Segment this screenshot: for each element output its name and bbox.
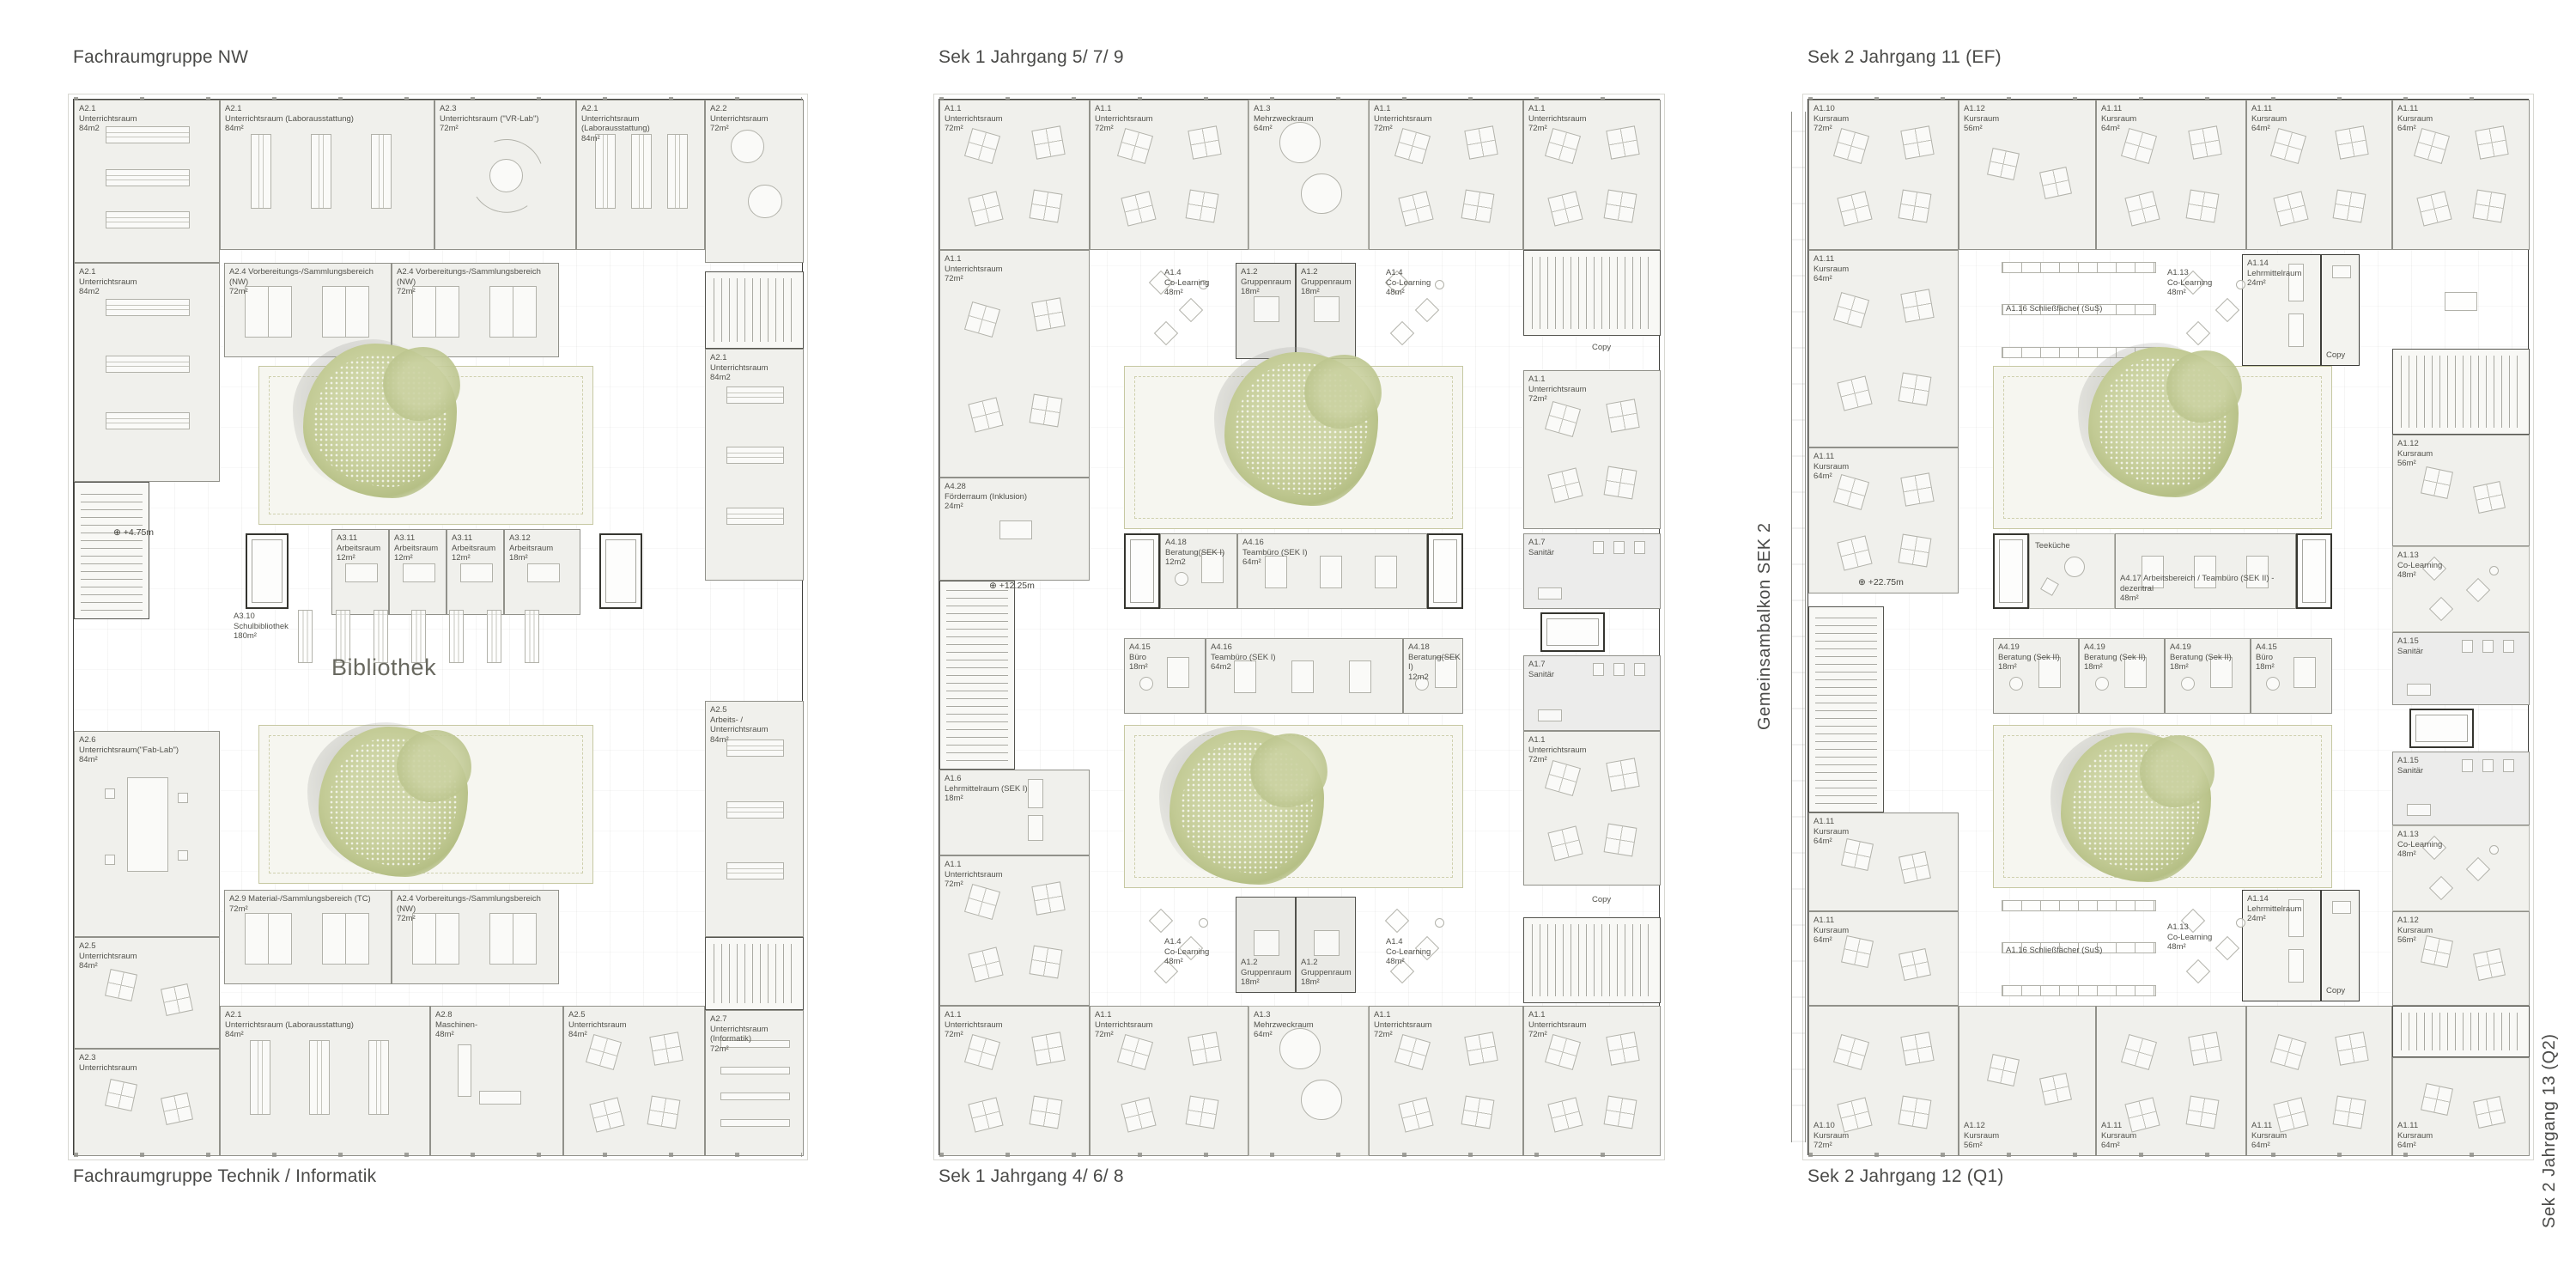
room-a1.7: A1.7 Sanitär [1523, 533, 1661, 609]
furniture [649, 1032, 683, 1065]
tree-foliage [383, 347, 460, 421]
furniture [2407, 684, 2431, 696]
furniture [1121, 1097, 1156, 1132]
room-label: A1.11 Kursraum 64m² [2101, 104, 2136, 134]
elevation-marker: ⊕ +12.25m [989, 581, 1035, 592]
room-a1.7: A1.7 Sanitär [1523, 655, 1661, 731]
furniture [2429, 597, 2453, 621]
furniture [161, 1093, 193, 1125]
furniture [105, 1079, 137, 1111]
furniture [2185, 189, 2219, 222]
furniture [1314, 296, 1340, 322]
furniture [1547, 1097, 1583, 1132]
furniture [1900, 472, 1934, 506]
annotation: Teeküche [2035, 541, 2070, 551]
room-label: A4.19 Beratung (Sek II) 18m² [2170, 642, 2232, 673]
room-a2.4: A2.4 Vorbereitungs-/Sammlungsbereich (NW… [392, 890, 559, 984]
furniture [2416, 191, 2451, 226]
furniture [2039, 167, 2072, 199]
room-a2.1: A2.1 Unterrichtsraum 84m2 [74, 100, 220, 263]
furniture [2473, 481, 2506, 514]
furniture [1320, 556, 1342, 588]
room-a2.9: A2.9 Material-/Sammlungsbereich (TC) 72m… [224, 890, 392, 984]
furniture [1435, 918, 1444, 928]
furniture [1254, 930, 1279, 956]
furniture [525, 610, 539, 663]
room-a1.12: A1.12 Kursraum 56m² [1959, 1006, 2096, 1156]
tree [1218, 345, 1385, 513]
furniture [1461, 1095, 1495, 1129]
furniture [1900, 1032, 1934, 1065]
furniture [250, 1040, 270, 1116]
furniture [1833, 292, 1869, 328]
courtyard [258, 366, 593, 525]
furniture [968, 1097, 1003, 1132]
furniture [2489, 845, 2499, 855]
room-label: A4.16 Teambüro (SEK I) 64m² [1242, 538, 1308, 568]
staircase [1523, 917, 1661, 1003]
room-label: A2.1 Unterrichtsraum 84m2 [710, 353, 769, 383]
furniture [1900, 289, 1934, 323]
room-label: A1.7 Sanitär [1528, 660, 1554, 679]
room-label: Copy [2326, 986, 2345, 996]
furniture [2121, 1033, 2157, 1069]
furniture [2040, 577, 2059, 596]
furniture [178, 793, 188, 803]
tree [312, 721, 475, 884]
tree [296, 337, 464, 504]
room-label: A1.1 Unterrichtsraum 72m² [1095, 1010, 1153, 1040]
room-a1.11: A1.11 Kursraum 64m² [2096, 1006, 2246, 1156]
room-a1.1: A1.1 Unterrichtsraum 72m² [1369, 1006, 1523, 1156]
room-label: A1.1 Unterrichtsraum 72m² [945, 860, 1003, 890]
room-a2.7: A2.7 Unterrichtsraum (Informatik) 72m² [705, 1010, 804, 1156]
furniture [1634, 663, 1645, 676]
plan3-title-top: Sek 2 Jahrgang 11 (EF) [1807, 47, 2002, 68]
room-label: A2.3 Unterrichtsraum ("VR-Lab") 72m² [440, 104, 539, 134]
furniture [1604, 466, 1637, 499]
furniture [1606, 125, 1639, 159]
furniture [1029, 1095, 1062, 1129]
tree-foliage [2166, 350, 2241, 423]
room-a4.16: A4.16 Teambüro (SEK I) 64m² [1237, 533, 1427, 609]
room-a1.1: A1.1 Unterrichtsraum 72m² [939, 100, 1090, 250]
furniture [2407, 804, 2431, 816]
furniture [1185, 1095, 1218, 1129]
room-copy: Copy [2321, 890, 2360, 1001]
room-label: A1.2 Gruppenraum 18m² [1241, 267, 1291, 297]
furniture [1314, 930, 1340, 956]
furniture [2185, 1095, 2219, 1129]
floor-plan-fachraumgruppe: A2.1 Unterrichtsraum 84m2A2.1 Unterricht… [73, 99, 803, 1155]
furniture [403, 563, 435, 582]
room-a2.5: A2.5 Arbeits- / Unterrichtsraum 84m² [705, 701, 804, 937]
furniture [2429, 876, 2453, 900]
room-label: A2.9 Material-/Sammlungsbereich (TC) 72m… [229, 894, 371, 914]
furniture [298, 610, 313, 663]
furniture [106, 169, 191, 186]
furniture [968, 397, 1003, 432]
room-a4.19: A4.19 Beratung (Sek II) 18m² [2165, 638, 2251, 714]
furniture [1545, 400, 1581, 436]
furniture [647, 1095, 680, 1129]
room-label: A1.12 Kursraum 56m² [1964, 1121, 1999, 1151]
furniture [1153, 321, 1177, 345]
staircase [2392, 349, 2530, 435]
furniture [1029, 393, 1062, 427]
room-a1.1: A1.1 Unterrichtsraum 72m² [939, 250, 1090, 478]
furniture [1188, 1032, 1221, 1065]
room-label: A1.1 Unterrichtsraum 72m² [945, 1010, 1003, 1040]
room-a1.14: A1.14 Lehrmittelraum 24m² [2242, 254, 2321, 366]
room-label: A1.11 Kursraum 64m² [1814, 916, 1849, 946]
room-a4.15: A4.15 Büro 18m² [1124, 638, 1206, 714]
annotation: A1.13 Co-Learning 48m² [2167, 268, 2212, 298]
room-label: A2.1 Unterrichtsraum (Laborausstattung) … [225, 104, 354, 134]
room-label: A2.1 Unterrichtsraum 84m2 [79, 104, 137, 134]
annotation: A1.4 Co-Learning 48m² [1386, 937, 1431, 967]
furniture [2475, 125, 2508, 159]
room-label: A1.1 Unterrichtsraum 72m² [1528, 374, 1587, 405]
room-a1.1: A1.1 Unterrichtsraum 72m² [1523, 1006, 1661, 1156]
room-a2.5: A2.5 Unterrichtsraum 84m² [74, 937, 220, 1049]
furniture [1188, 125, 1221, 159]
elevator [1124, 533, 1160, 609]
room-a4.17: A4.17 Arbeitsbereich / Teambüro (SEK II)… [2115, 533, 2296, 609]
furniture [2482, 759, 2494, 772]
room-label: A1.11 Kursraum 64m² [1814, 254, 1849, 284]
furniture [1898, 189, 1931, 222]
furniture [1389, 321, 1413, 345]
furniture [1175, 572, 1188, 586]
room-a1.1: A1.1 Unterrichtsraum 72m² [939, 1006, 1090, 1156]
furniture [2503, 640, 2514, 653]
room-label: A2.1 Unterrichtsraum (Laborausstattung) … [581, 104, 704, 143]
furniture [1833, 1033, 1869, 1069]
room-copy: Copy [2321, 254, 2360, 366]
furniture [1029, 945, 1062, 978]
room-label: A2.4 Vorbereitungs-/Sammlungsbereich (NW… [229, 267, 391, 297]
room-a1.15: A1.15 Sanitär [2392, 752, 2530, 825]
room-label: A1.13 Co-Learning 48m² [2397, 830, 2442, 860]
room-a4.18: A4.18 Beratung(SEK I) 12m2 [1160, 533, 1237, 609]
furniture [1987, 1054, 2020, 1086]
furniture [527, 563, 560, 582]
room-a1.1: A1.1 Unterrichtsraum 72m² [1523, 100, 1661, 250]
furniture [2445, 292, 2477, 311]
elevator [1540, 612, 1605, 652]
room-label: A4.19 Beratung (Sek II) 18m² [1998, 642, 2060, 673]
furniture [2215, 935, 2239, 959]
room-label: A1.1 Unterrichtsraum 72m² [1528, 104, 1587, 134]
room-a4.19: A4.19 Beratung (Sek II) 18m² [2079, 638, 2165, 714]
room-a1.1: A1.1 Unterrichtsraum 72m² [1523, 370, 1661, 529]
furniture [1538, 587, 1562, 600]
room-a2.1: A2.1 Unterrichtsraum 84m2 [74, 263, 220, 482]
furniture [2188, 1032, 2221, 1065]
annotation: A1.16 Schließfächer (SuS) [2006, 304, 2102, 314]
furniture [2181, 677, 2195, 691]
room-a4.16: A4.16 Teambüro (SEK I) 64m2 [1206, 638, 1403, 714]
furniture [2333, 1095, 2366, 1129]
furniture [2473, 1096, 2506, 1129]
furniture [2009, 677, 2023, 691]
furniture [2332, 265, 2351, 278]
furniture [322, 913, 369, 964]
furniture [1031, 125, 1065, 159]
room-label: A4.15 Büro 18m² [2256, 642, 2277, 673]
room-label: A3.11 Arbeitsraum 12m² [394, 533, 438, 563]
room-label: A1.13 Co-Learning 48m² [2397, 551, 2442, 581]
room-a1.1: A1.1 Unterrichtsraum 72m² [1523, 731, 1661, 886]
room-label: A1.11 Kursraum 64m² [1814, 452, 1849, 482]
room-label: A1.1 Unterrichtsraum 72m² [945, 104, 1003, 134]
furniture [1900, 125, 1934, 159]
room-label: A2.8 Maschinen- 48m² [435, 1010, 477, 1040]
room-label: A1.12 Kursraum 56m² [1964, 104, 1999, 134]
room-a1.3: A1.3 Mehrzweckraum 64m² [1249, 1006, 1369, 1156]
room-a2.6: A2.6 Unterrichtsraum("Fab-Lab") 84m² [74, 731, 220, 937]
furniture [2273, 191, 2308, 226]
furniture [2095, 677, 2109, 691]
furniture [2336, 1032, 2369, 1065]
room-label: A1.3 Mehrzweckraum 64m² [1254, 1010, 1314, 1040]
room-label: A1.14 Lehrmittelraum 24m² [2247, 894, 2301, 924]
furniture [748, 185, 781, 218]
furniture [2039, 1073, 2072, 1105]
furniture [2002, 985, 2156, 996]
room-label: A4.28 Förderraum (Inklusion) 24m² [945, 482, 1027, 512]
elevator [246, 533, 289, 609]
furniture [2236, 280, 2245, 289]
room-label: A1.2 Gruppenraum 18m² [1301, 958, 1352, 988]
furniture [2288, 313, 2304, 347]
zone [2401, 259, 2521, 344]
room-a1.11: A1.11 Kursraum 64m² [2096, 100, 2246, 250]
furniture [105, 969, 137, 1001]
room-a1.12: A1.12 Kursraum 56m² [1959, 100, 2096, 250]
furniture [1031, 297, 1065, 331]
room-label: A2.1 Unterrichtsraum 84m2 [79, 267, 137, 297]
elevator [1427, 533, 1463, 609]
room-a1.10: A1.10 Kursraum 72m² [1808, 1006, 1959, 1156]
furniture [2124, 191, 2160, 226]
room-label: A1.1 Unterrichtsraum 72m² [1528, 735, 1587, 765]
room-label: A4.15 Büro 18m² [1129, 642, 1151, 673]
furniture [1634, 541, 1645, 554]
elevation-marker: ⊕ +22.75m [1858, 577, 1904, 588]
furniture [1121, 191, 1156, 226]
room-a1.13: A1.13 Co-Learning 48m² [2392, 825, 2530, 911]
room-a1.11: A1.11 Kursraum 64m² [1808, 250, 1959, 447]
courtyard [258, 725, 593, 884]
furniture [1029, 189, 1062, 222]
furniture [1185, 189, 1218, 222]
room-a1.11: A1.11 Kursraum 64m² [2246, 1006, 2392, 1156]
furniture [1547, 825, 1583, 861]
room-label: A1.1 Unterrichtsraum 72m² [1374, 104, 1432, 134]
furniture [1398, 1097, 1433, 1132]
tree [1163, 724, 1331, 892]
furniture [726, 508, 784, 525]
furniture [1435, 280, 1444, 289]
room-a4.19: A4.19 Beratung (Sek II) 18m² [1993, 638, 2079, 714]
furniture [161, 983, 193, 1016]
furniture [2482, 640, 2494, 653]
furniture [1604, 1095, 1637, 1129]
room-label: A1.2 Gruppenraum 18m² [1241, 958, 1291, 988]
staircase [705, 271, 804, 349]
furniture [1415, 297, 1439, 321]
furniture [449, 610, 464, 663]
room-label: A4.17 Arbeitsbereich / Teambüro (SEK II)… [2120, 574, 2295, 604]
furniture [106, 412, 191, 429]
room-a1.14: A1.14 Lehrmittelraum 24m² [2242, 890, 2321, 1001]
furniture [1349, 660, 1371, 693]
furniture [368, 1040, 389, 1116]
furniture [720, 1093, 790, 1100]
room-a1.6: A1.6 Lehrmittelraum (SEK I) 18m² [939, 770, 1090, 855]
room-a4.15: A4.15 Büro 18m² [2251, 638, 2332, 714]
furniture [1464, 125, 1498, 159]
courtyard [1993, 725, 2332, 888]
furniture [2473, 948, 2506, 981]
furniture [2462, 759, 2473, 772]
elevator [2409, 709, 2474, 748]
furniture [1385, 909, 1409, 933]
room-a1.15: A1.15 Sanitär [2392, 632, 2530, 705]
furniture [1613, 663, 1625, 676]
furniture [1606, 399, 1639, 432]
floor-plan-sek2: A1.10 Kursraum 72m²A1.12 Kursraum 56m²A1… [1807, 99, 2529, 1155]
floor-plan-sheet: { "sheet": {"background": "#ffffff", "li… [0, 0, 2576, 1266]
furniture [720, 1119, 790, 1127]
furniture [2332, 901, 2351, 914]
furniture [2002, 900, 2156, 911]
annotation: Copy [1592, 343, 1611, 353]
tree [2055, 726, 2218, 889]
room-a1.1: A1.1 Unterrichtsraum 72m² [939, 855, 1090, 1006]
furniture [2473, 189, 2506, 222]
staircase [1523, 250, 1661, 336]
room-a1.1: A1.1 Unterrichtsraum 72m² [1090, 1006, 1249, 1156]
furniture [726, 801, 784, 819]
furniture [2489, 566, 2499, 575]
room-label: A2.1 Unterrichtsraum (Laborausstattung) … [225, 1010, 354, 1040]
plan3-title-bottom: Sek 2 Jahrgang 12 (Q1) [1807, 1166, 2004, 1187]
furniture [964, 301, 1000, 337]
furniture [1593, 541, 1604, 554]
furniture [1898, 534, 1931, 568]
furniture [2236, 918, 2245, 928]
furniture [667, 134, 688, 210]
room-a1.11: A1.11 Kursraum 64m² [2246, 100, 2392, 250]
furniture [479, 1091, 522, 1105]
room-a4.18: A4.18 Beratung(SEK I) 12m2 [1403, 638, 1463, 714]
furniture [2462, 640, 2473, 653]
room-a2.8: A2.8 Maschinen- 48m² [430, 1006, 563, 1156]
room-label: A1.12 Kursraum 56m² [2397, 439, 2433, 469]
room-label: A2.2 Unterrichtsraum 72m² [710, 104, 769, 134]
furniture [1538, 709, 1562, 721]
room-a1.2: A1.2 Gruppenraum 18m² [1236, 897, 1296, 993]
annotation: A1.4 Co-Learning 48m² [1386, 268, 1431, 298]
room-label: A2.4 Vorbereitungs-/Sammlungsbereich (NW… [397, 894, 558, 924]
annotation: A1.16 Schließfächer (SuS) [2006, 946, 2102, 956]
furniture [2064, 557, 2085, 577]
furniture [1837, 191, 1872, 226]
furniture [106, 356, 191, 373]
room-a1.11: A1.11 Kursraum 64m² [1808, 911, 1959, 1006]
staircase [2392, 1006, 2530, 1057]
furniture [311, 134, 331, 210]
furniture [2002, 262, 2156, 273]
furniture [1604, 824, 1637, 857]
room-label: A4.18 Beratung(SEK I) 12m2 [1165, 538, 1224, 568]
room-a2.1: A2.1 Unterrichtsraum 84m2 [705, 349, 804, 581]
furniture [2336, 125, 2369, 159]
room-a1.12: A1.12 Kursraum 56m² [2392, 911, 2530, 1006]
furniture [105, 855, 115, 865]
furniture [999, 520, 1032, 539]
balcony-vertical-label: Gemeinsambalkon SEK 2 [1755, 369, 1775, 730]
room-label: A4.19 Beratung (Sek II) 18m² [2084, 642, 2146, 673]
elevation-marker: ⊕ +4.75m [113, 527, 154, 539]
furniture [595, 134, 616, 210]
furniture [631, 134, 652, 210]
room-label: A2.3 Unterrichtsraum [79, 1053, 137, 1073]
furniture [1254, 296, 1279, 322]
courtyard [1993, 366, 2332, 529]
furniture [1987, 148, 2020, 180]
furniture [1028, 815, 1043, 841]
furniture [1899, 851, 1931, 884]
furniture [1167, 657, 1189, 688]
furniture [2466, 578, 2490, 602]
furniture [1375, 556, 1397, 588]
room-label: A1.11 Kursraum 64m² [1814, 817, 1849, 847]
furniture [309, 1040, 330, 1116]
tree-foliage [1250, 733, 1327, 807]
staircase [939, 581, 1015, 770]
furniture [2421, 466, 2453, 499]
room-a2.2: A2.2 Unterrichtsraum 72m² [705, 100, 804, 263]
room-label: A2.4 Vorbereitungs-/Sammlungsbereich (NW… [397, 267, 558, 297]
furniture [2288, 949, 2304, 983]
annotation: A1.4 Co-Learning 48m² [1164, 937, 1209, 967]
room-label: A2.7 Unterrichtsraum (Informatik) 72m² [710, 1014, 803, 1054]
room-label: A1.7 Sanitär [1528, 538, 1554, 557]
annotation: Copy [1592, 895, 1611, 905]
plan1-title-top: Fachraumgruppe NW [73, 47, 248, 68]
furniture [589, 1097, 624, 1132]
furniture [1031, 1032, 1065, 1065]
room-label: A1.10 Kursraum 72m² [1814, 104, 1849, 134]
room-a1.11: A1.11 Kursraum 64m² [2392, 100, 2530, 250]
furniture [460, 563, 493, 582]
furniture [1593, 663, 1604, 676]
room-a1.13: A1.13 Co-Learning 48m² [2392, 546, 2530, 632]
room-label: A3.12 Arbeitsraum 18m² [509, 533, 553, 563]
furniture [1898, 373, 1931, 406]
room-label: A2.6 Unterrichtsraum("Fab-Lab") 84m² [79, 735, 179, 765]
room-label: A1.12 Kursraum 56m² [2397, 916, 2433, 946]
plan2-title-bottom: Sek 1 Jahrgang 4/ 6/ 8 [939, 1166, 1124, 1187]
furniture [2186, 959, 2210, 983]
furniture [1301, 1080, 1342, 1121]
staircase [74, 482, 149, 619]
furniture [2188, 125, 2221, 159]
